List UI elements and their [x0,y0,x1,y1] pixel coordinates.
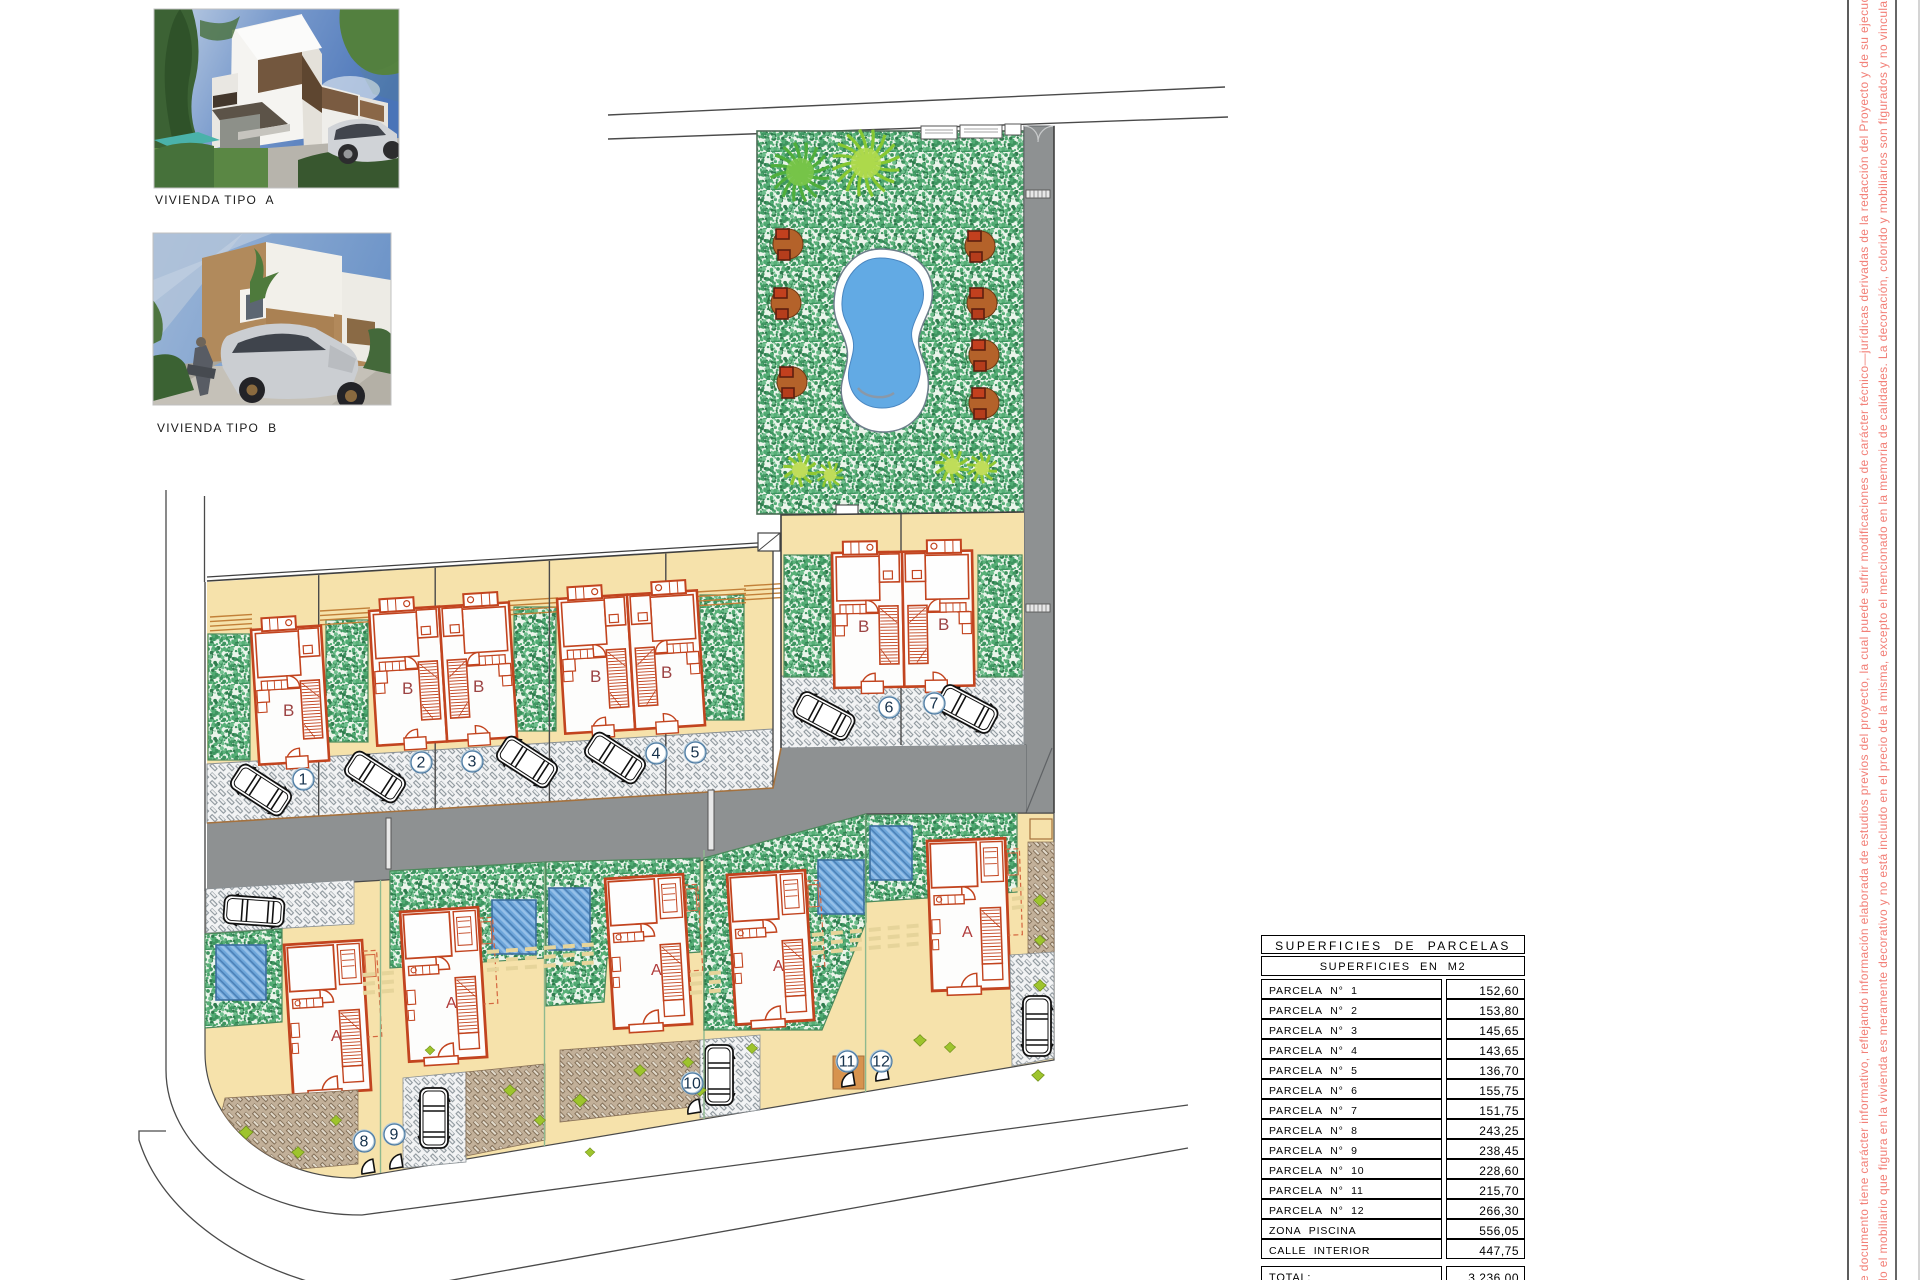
svg-text:B: B [402,679,413,698]
svg-text:A: A [331,1028,342,1045]
svg-text:10: 10 [683,1076,701,1093]
svg-text:9: 9 [390,1127,399,1144]
svg-text:B: B [283,701,294,720]
svg-text:A: A [446,995,457,1012]
svg-text:8: 8 [360,1134,369,1151]
svg-text:A: A [773,958,784,975]
svg-text:B: B [473,677,484,696]
svg-text:4: 4 [652,746,661,763]
svg-text:1: 1 [299,772,308,789]
svg-text:B: B [938,615,949,634]
svg-text:3: 3 [468,754,477,771]
svg-text:5: 5 [691,745,700,762]
svg-text:12: 12 [872,1054,890,1071]
svg-text:A: A [651,962,662,979]
svg-text:B: B [590,667,601,686]
svg-text:B: B [661,663,672,682]
svg-text:11: 11 [839,1054,856,1071]
svg-text:7: 7 [930,696,939,713]
svg-text:B: B [858,617,869,636]
svg-text:6: 6 [885,700,894,717]
svg-text:2: 2 [417,755,426,772]
svg-text:A: A [962,924,973,941]
